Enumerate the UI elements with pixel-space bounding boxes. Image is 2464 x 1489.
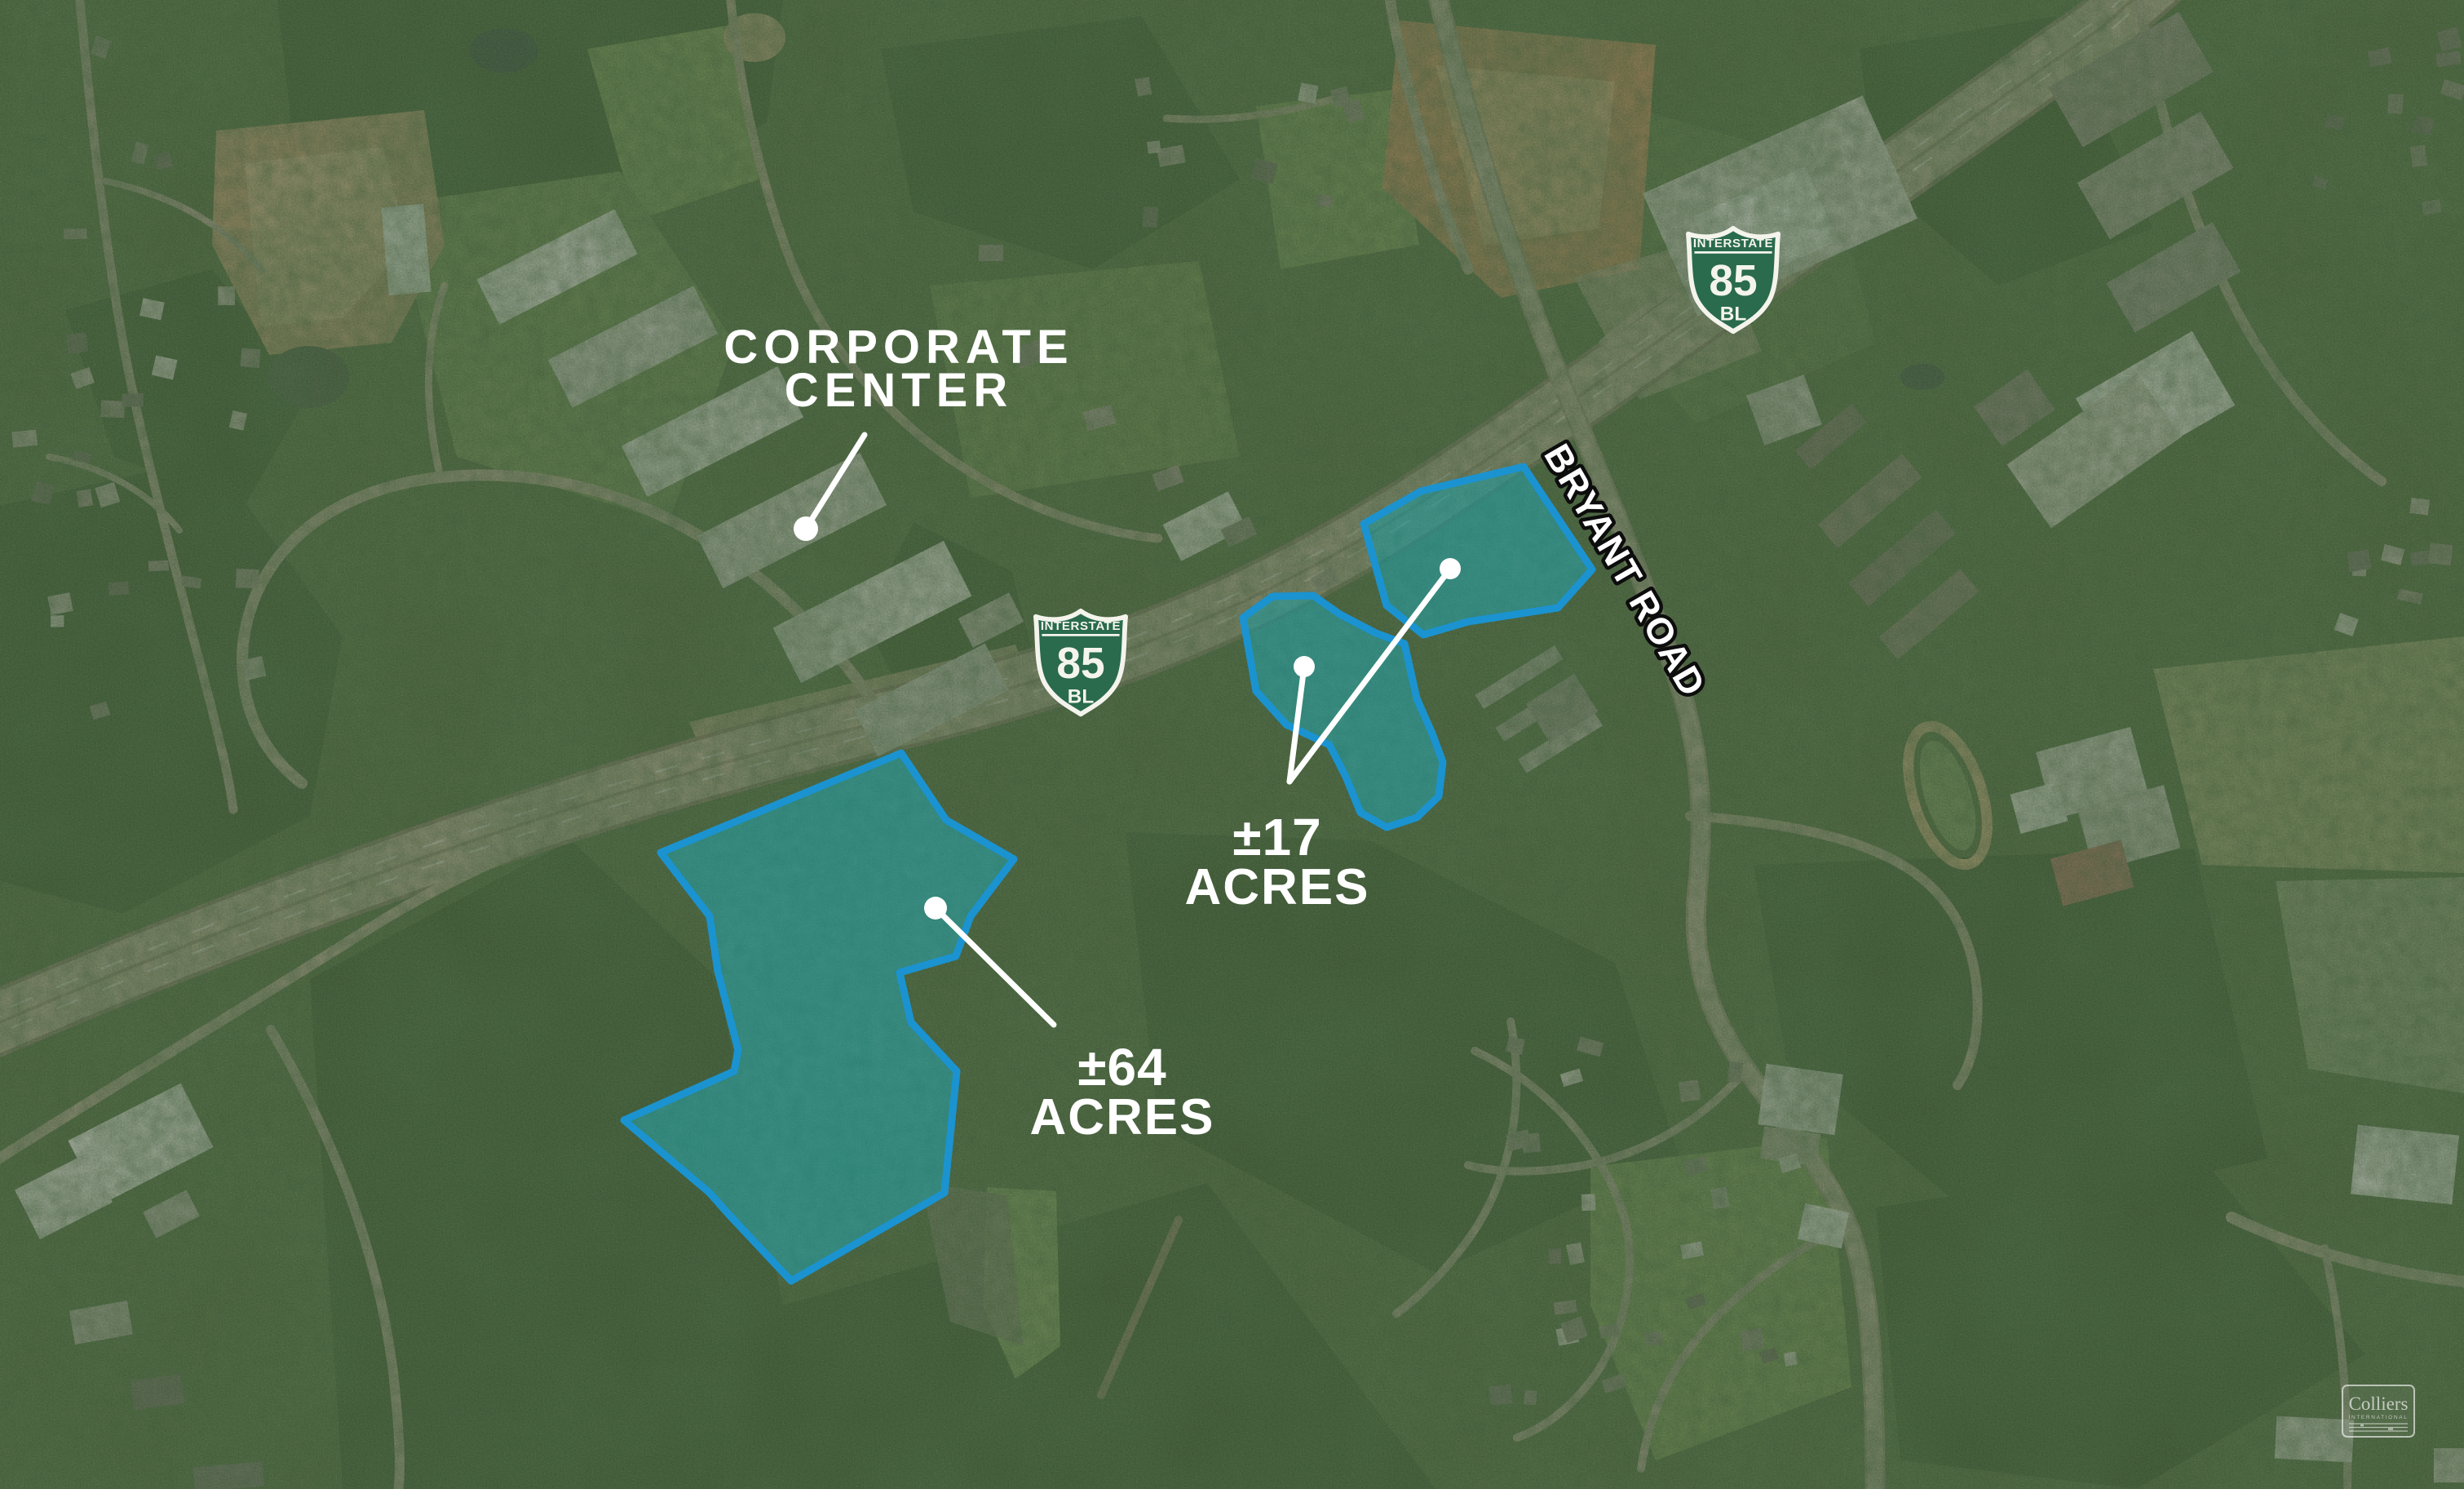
parcel-17-acreage-label: ±17 [1232, 808, 1321, 866]
shield-interstate-text: INTERSTATE [1693, 237, 1773, 250]
parcel-64-unit-label: ACRES [1029, 1089, 1214, 1146]
parcel-64-dot [924, 897, 947, 920]
shield-route-number: 85 [1709, 257, 1757, 305]
watermark-brand-text: Colliers [2349, 1394, 2409, 1414]
shield-suffix-text: BL [1068, 685, 1095, 707]
parcel-17-dot [1440, 558, 1461, 579]
parcel-17-dot [1294, 656, 1315, 677]
corporate-center-dot [794, 516, 818, 541]
shield-suffix-text: BL [1720, 303, 1747, 325]
shield-interstate-text: INTERSTATE [1041, 619, 1121, 633]
parcel-64-acreage-label: ±64 [1077, 1038, 1166, 1097]
site-map-flyer: CORPORATE CENTER BRYANT ROAD ±17 ACRES ±… [0, 0, 2464, 1489]
parcel-17-unit-label: ACRES [1184, 859, 1369, 915]
corporate-center-label-line2: CENTER [785, 364, 1013, 417]
watermark-sub-text: INTERNATIONAL [2348, 1415, 2408, 1420]
colliers-watermark: Colliers INTERNATIONAL [2342, 1385, 2414, 1437]
map-canvas: CORPORATE CENTER BRYANT ROAD ±17 ACRES ±… [0, 0, 2464, 1489]
shield-route-number: 85 [1056, 640, 1104, 688]
grain-light-texture [0, 0, 2464, 1489]
